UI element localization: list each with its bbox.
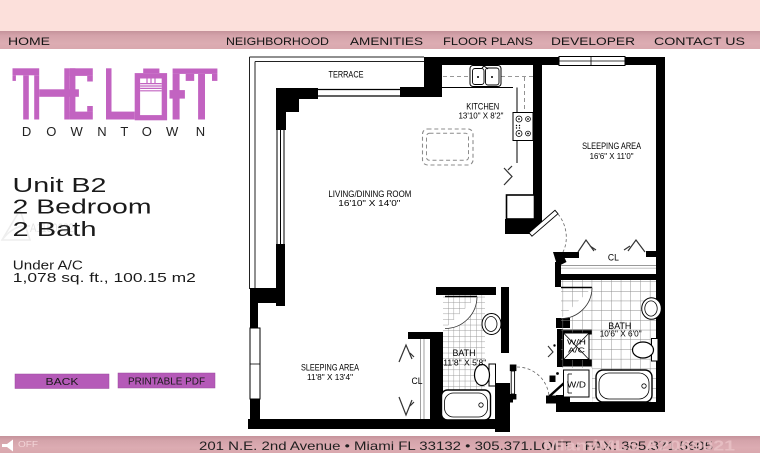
svg-text:A/C: A/C	[568, 346, 586, 355]
svg-text:DEVELOPER: DEVELOPER	[551, 36, 635, 48]
svg-text:W: W	[70, 124, 83, 139]
svg-text:N: N	[196, 124, 205, 139]
svg-text:W/D: W/D	[567, 381, 586, 390]
svg-text:1,078 sq. ft., 100.15 m2: 1,078 sq. ft., 100.15 m2	[13, 270, 196, 285]
svg-text:T: T	[120, 124, 128, 139]
svg-text:AMENITIES: AMENITIES	[350, 36, 423, 48]
svg-text:CL: CL	[608, 253, 619, 263]
svg-text:NEIGHBORHOOD: NEIGHBORHOOD	[226, 36, 329, 48]
svg-text:PRINTABLE PDF: PRINTABLE PDF	[128, 377, 205, 388]
svg-text:TERRACE: TERRACE	[329, 70, 364, 81]
svg-text:CL: CL	[412, 376, 423, 386]
svg-text:11'8" X 13'4": 11'8" X 13'4"	[307, 372, 353, 382]
svg-text:BACK: BACK	[46, 377, 79, 388]
svg-text:2 Bedroom: 2 Bedroom	[13, 196, 152, 218]
svg-text:OFF: OFF	[18, 439, 38, 449]
svg-text:N: N	[97, 124, 106, 139]
svg-text:2 Bath: 2 Bath	[13, 219, 97, 241]
svg-text:HOME: HOME	[8, 36, 50, 48]
svg-text:O: O	[142, 124, 152, 139]
svg-text:Unit B2: Unit B2	[13, 175, 107, 197]
svg-text:13'10" X 8'2": 13'10" X 8'2"	[459, 111, 504, 121]
svg-text:16'10" X 14'0": 16'10" X 14'0"	[338, 198, 400, 208]
svg-text:16'6" X 11'0": 16'6" X 11'0"	[590, 151, 634, 161]
svg-text:W: W	[166, 124, 179, 139]
svg-text:11'8" X 5'8": 11'8" X 5'8"	[443, 358, 486, 368]
svg-text:MiamiMLS A2069021: MiamiMLS A2069021	[543, 438, 735, 453]
svg-text:FLOOR PLANS: FLOOR PLANS	[443, 36, 533, 48]
svg-text:D: D	[22, 124, 31, 139]
svg-text:O: O	[46, 124, 56, 139]
svg-text:10'6" X 6'0": 10'6" X 6'0"	[600, 328, 642, 338]
svg-text:CONTACT US: CONTACT US	[654, 36, 745, 48]
